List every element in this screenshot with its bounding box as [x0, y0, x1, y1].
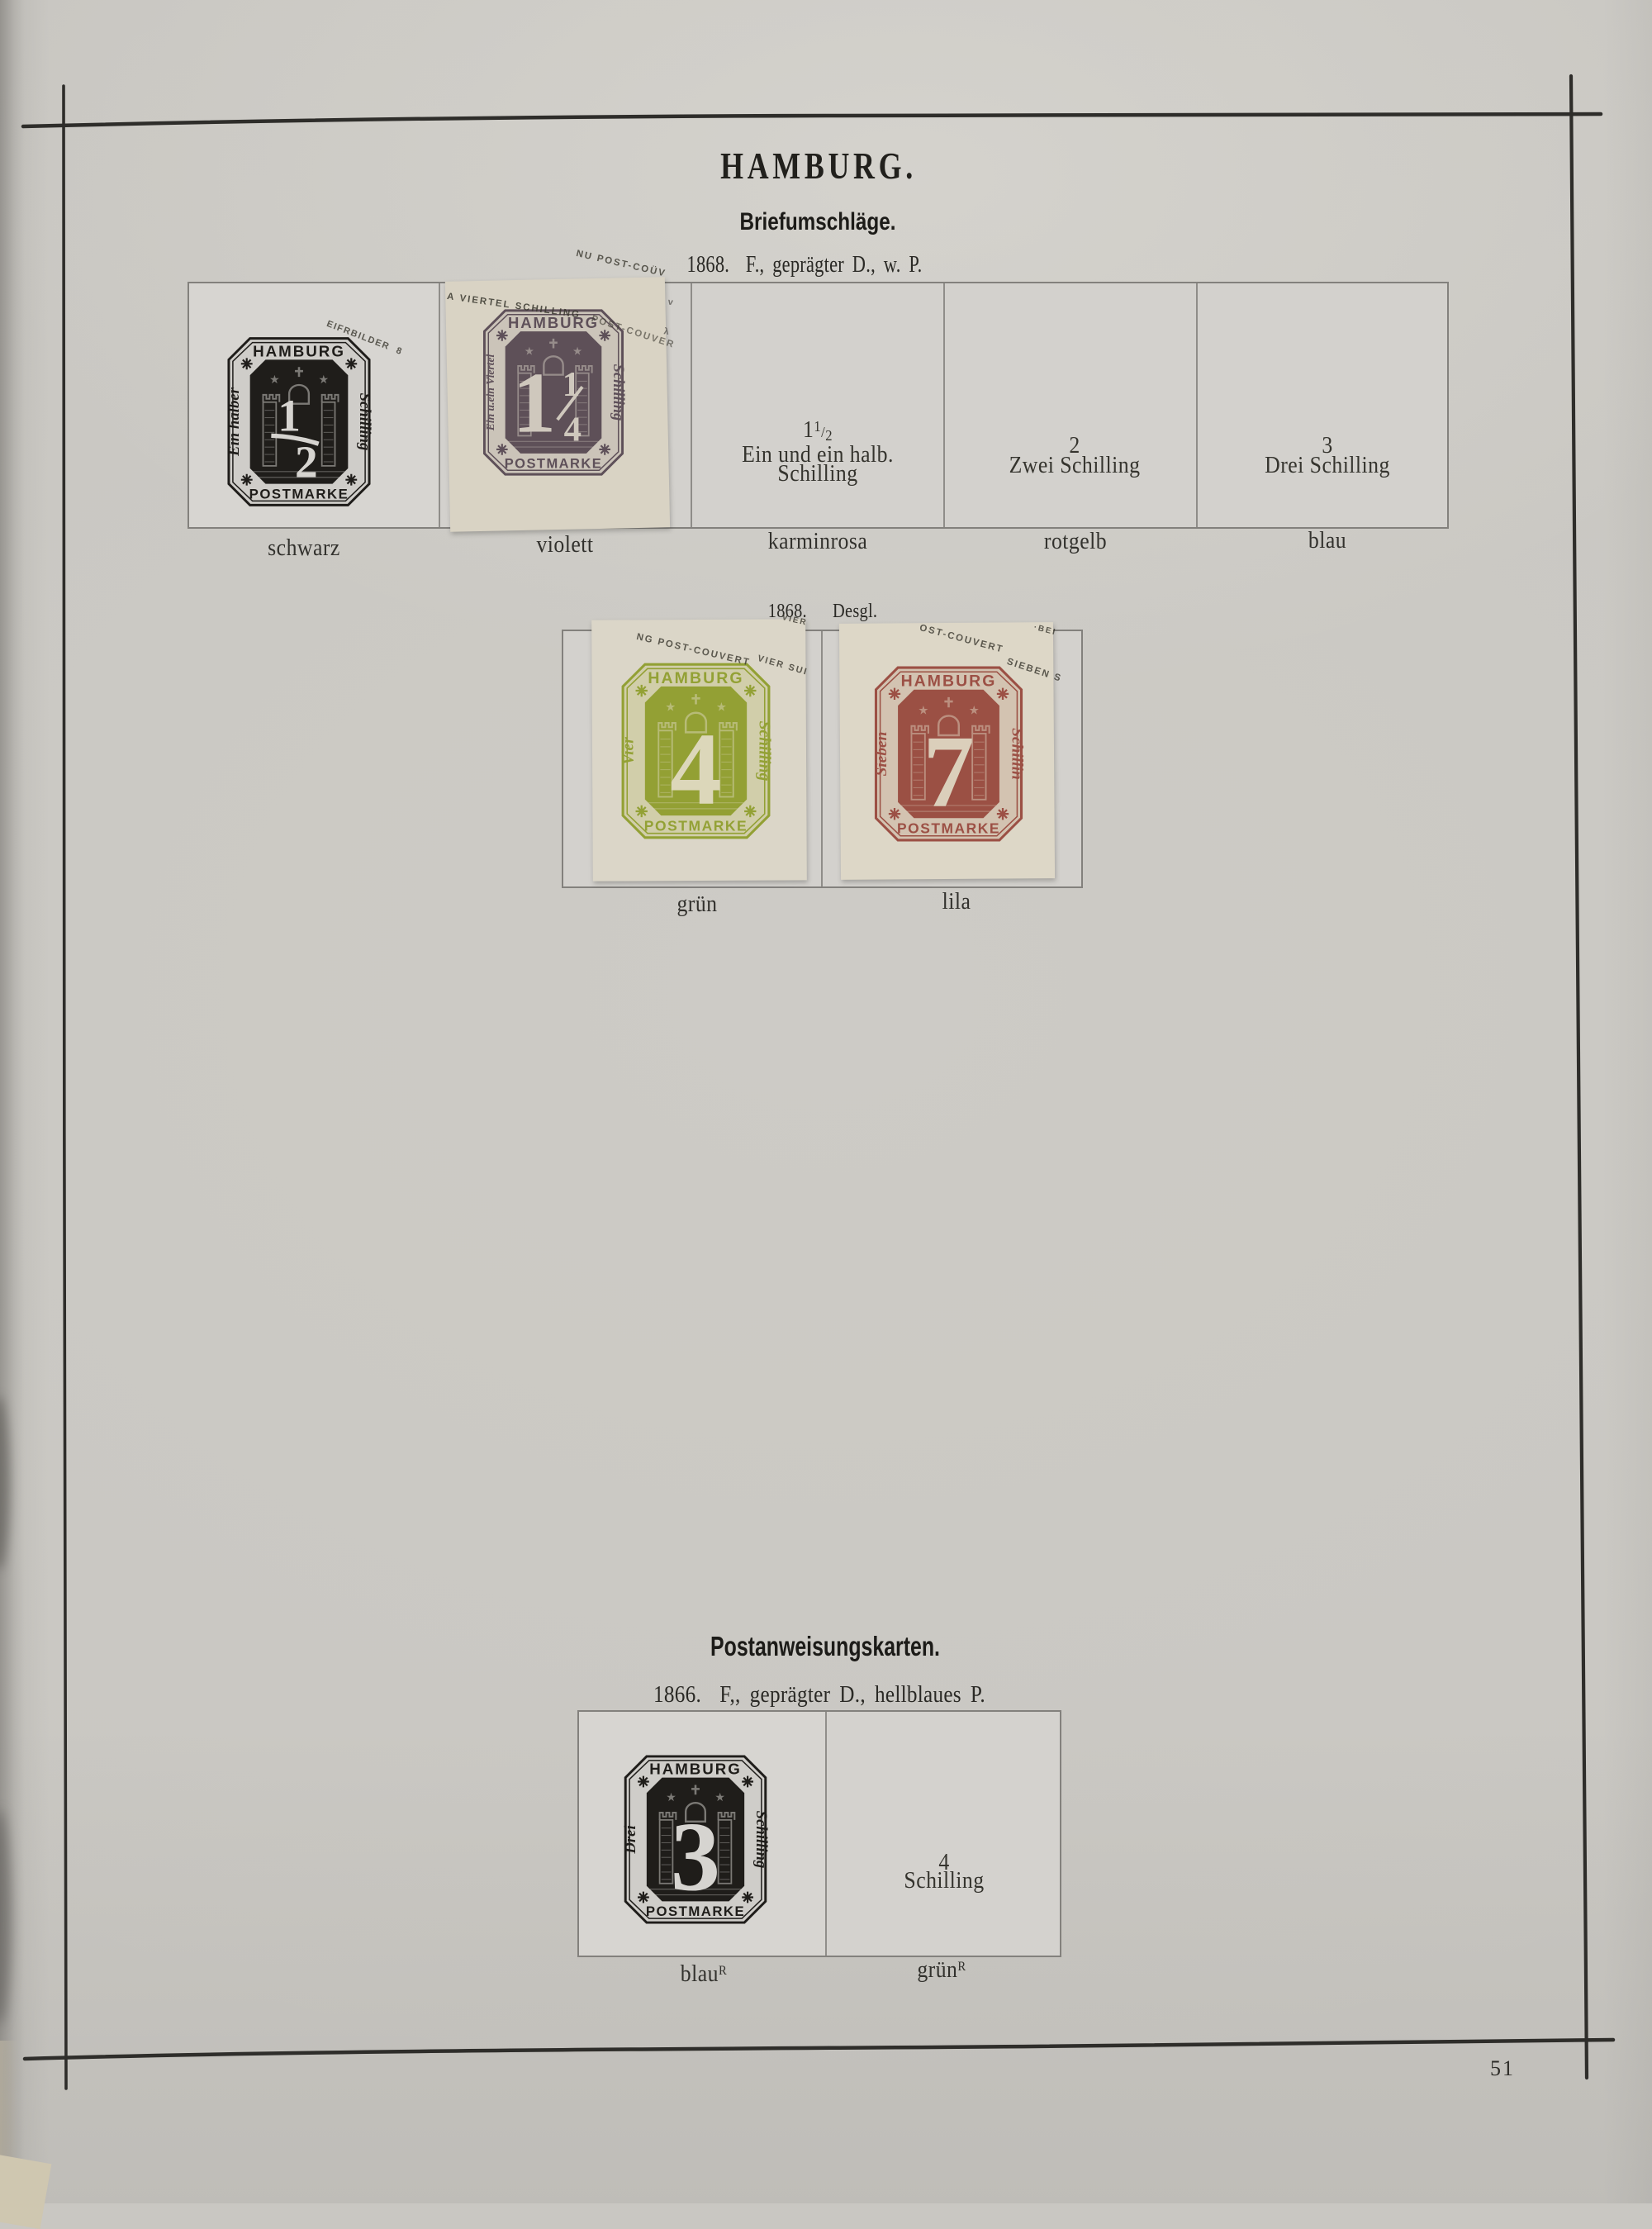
svg-text:1: 1: [563, 365, 580, 404]
svg-text:★: ★: [318, 373, 328, 386]
svg-text:Schilling: Schilling: [610, 364, 627, 421]
svg-text:3: 3: [671, 1803, 720, 1913]
svg-text:POSTMARKE: POSTMARKE: [505, 456, 603, 471]
svg-text:2: 2: [295, 437, 318, 487]
svg-text:HAMBURG: HAMBURG: [253, 342, 345, 359]
svg-text:★: ★: [572, 345, 582, 357]
svg-text:Vier: Vier: [619, 737, 637, 765]
svg-text:Ein halber: Ein halber: [225, 387, 243, 457]
svg-text:HAMBURG: HAMBURG: [649, 1761, 742, 1778]
svg-text:Ein u.ein Viertel: Ein u.ein Viertel: [484, 354, 496, 432]
svg-text:Schilling: Schilling: [752, 1811, 770, 1869]
svg-text:Schilling: Schilling: [756, 721, 772, 782]
svg-text:4: 4: [564, 410, 582, 449]
svg-text:HAMBURG: HAMBURG: [901, 673, 997, 691]
svg-text:Drei: Drei: [622, 1825, 639, 1855]
svg-text:7: 7: [923, 715, 974, 829]
svg-text:HAMBURG: HAMBURG: [508, 314, 599, 331]
svg-text:1: 1: [278, 390, 301, 440]
svg-text:HAMBURG: HAMBURG: [648, 669, 743, 687]
svg-text:Sieben: Sieben: [873, 732, 890, 777]
svg-text:1: 1: [512, 354, 555, 451]
svg-text:4: 4: [670, 712, 722, 827]
svg-text:Schilling: Schilling: [356, 393, 373, 451]
svg-text:Schillin: Schillin: [1008, 728, 1025, 780]
svg-text:★: ★: [269, 373, 279, 386]
svg-text:POSTMARKE: POSTMARKE: [249, 486, 349, 501]
